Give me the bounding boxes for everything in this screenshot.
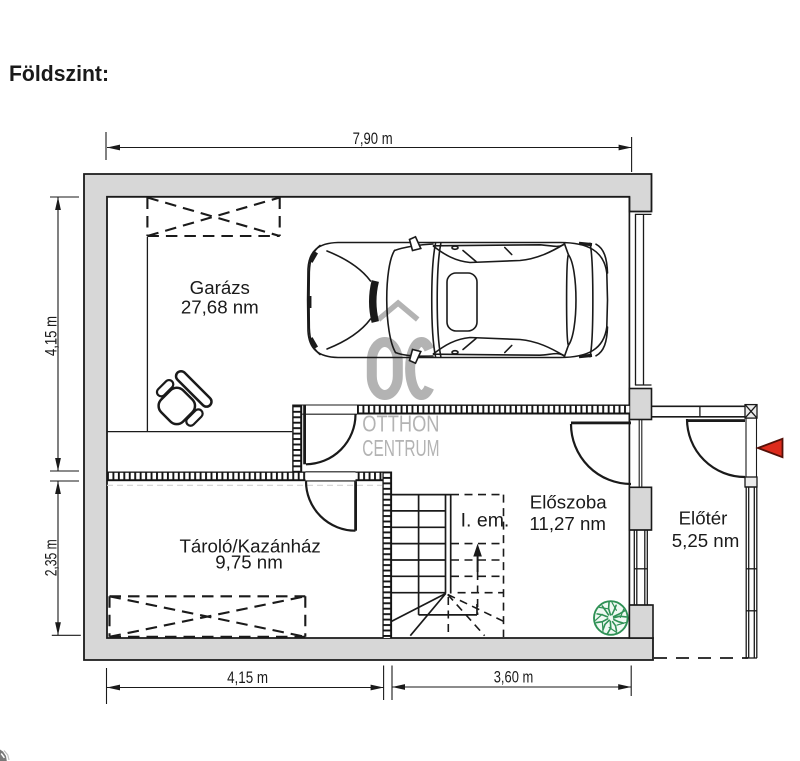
svg-text:Előszoba: Előszoba (530, 491, 607, 512)
svg-text:11,27 nm: 11,27 nm (529, 513, 606, 534)
svg-text:Előtér: Előtér (679, 508, 728, 529)
svg-text:2,35 m: 2,35 m (43, 539, 61, 576)
svg-text:7,90 m: 7,90 m (353, 130, 393, 148)
svg-text:Földszint:: Földszint: (9, 61, 109, 86)
svg-text:3,60 m: 3,60 m (494, 669, 534, 687)
svg-text:9,75 nm: 9,75 nm (215, 552, 283, 573)
svg-text:27,68 nm: 27,68 nm (181, 297, 259, 318)
svg-text:5,25 nm: 5,25 nm (672, 530, 740, 551)
svg-text:4,15 m: 4,15 m (227, 669, 268, 687)
svg-text:I. em.: I. em. (461, 510, 510, 532)
svg-text:CENTRUM: CENTRUM (362, 435, 439, 461)
svg-text:4,15 m: 4,15 m (43, 316, 61, 356)
svg-text:Garázs: Garázs (190, 277, 250, 298)
